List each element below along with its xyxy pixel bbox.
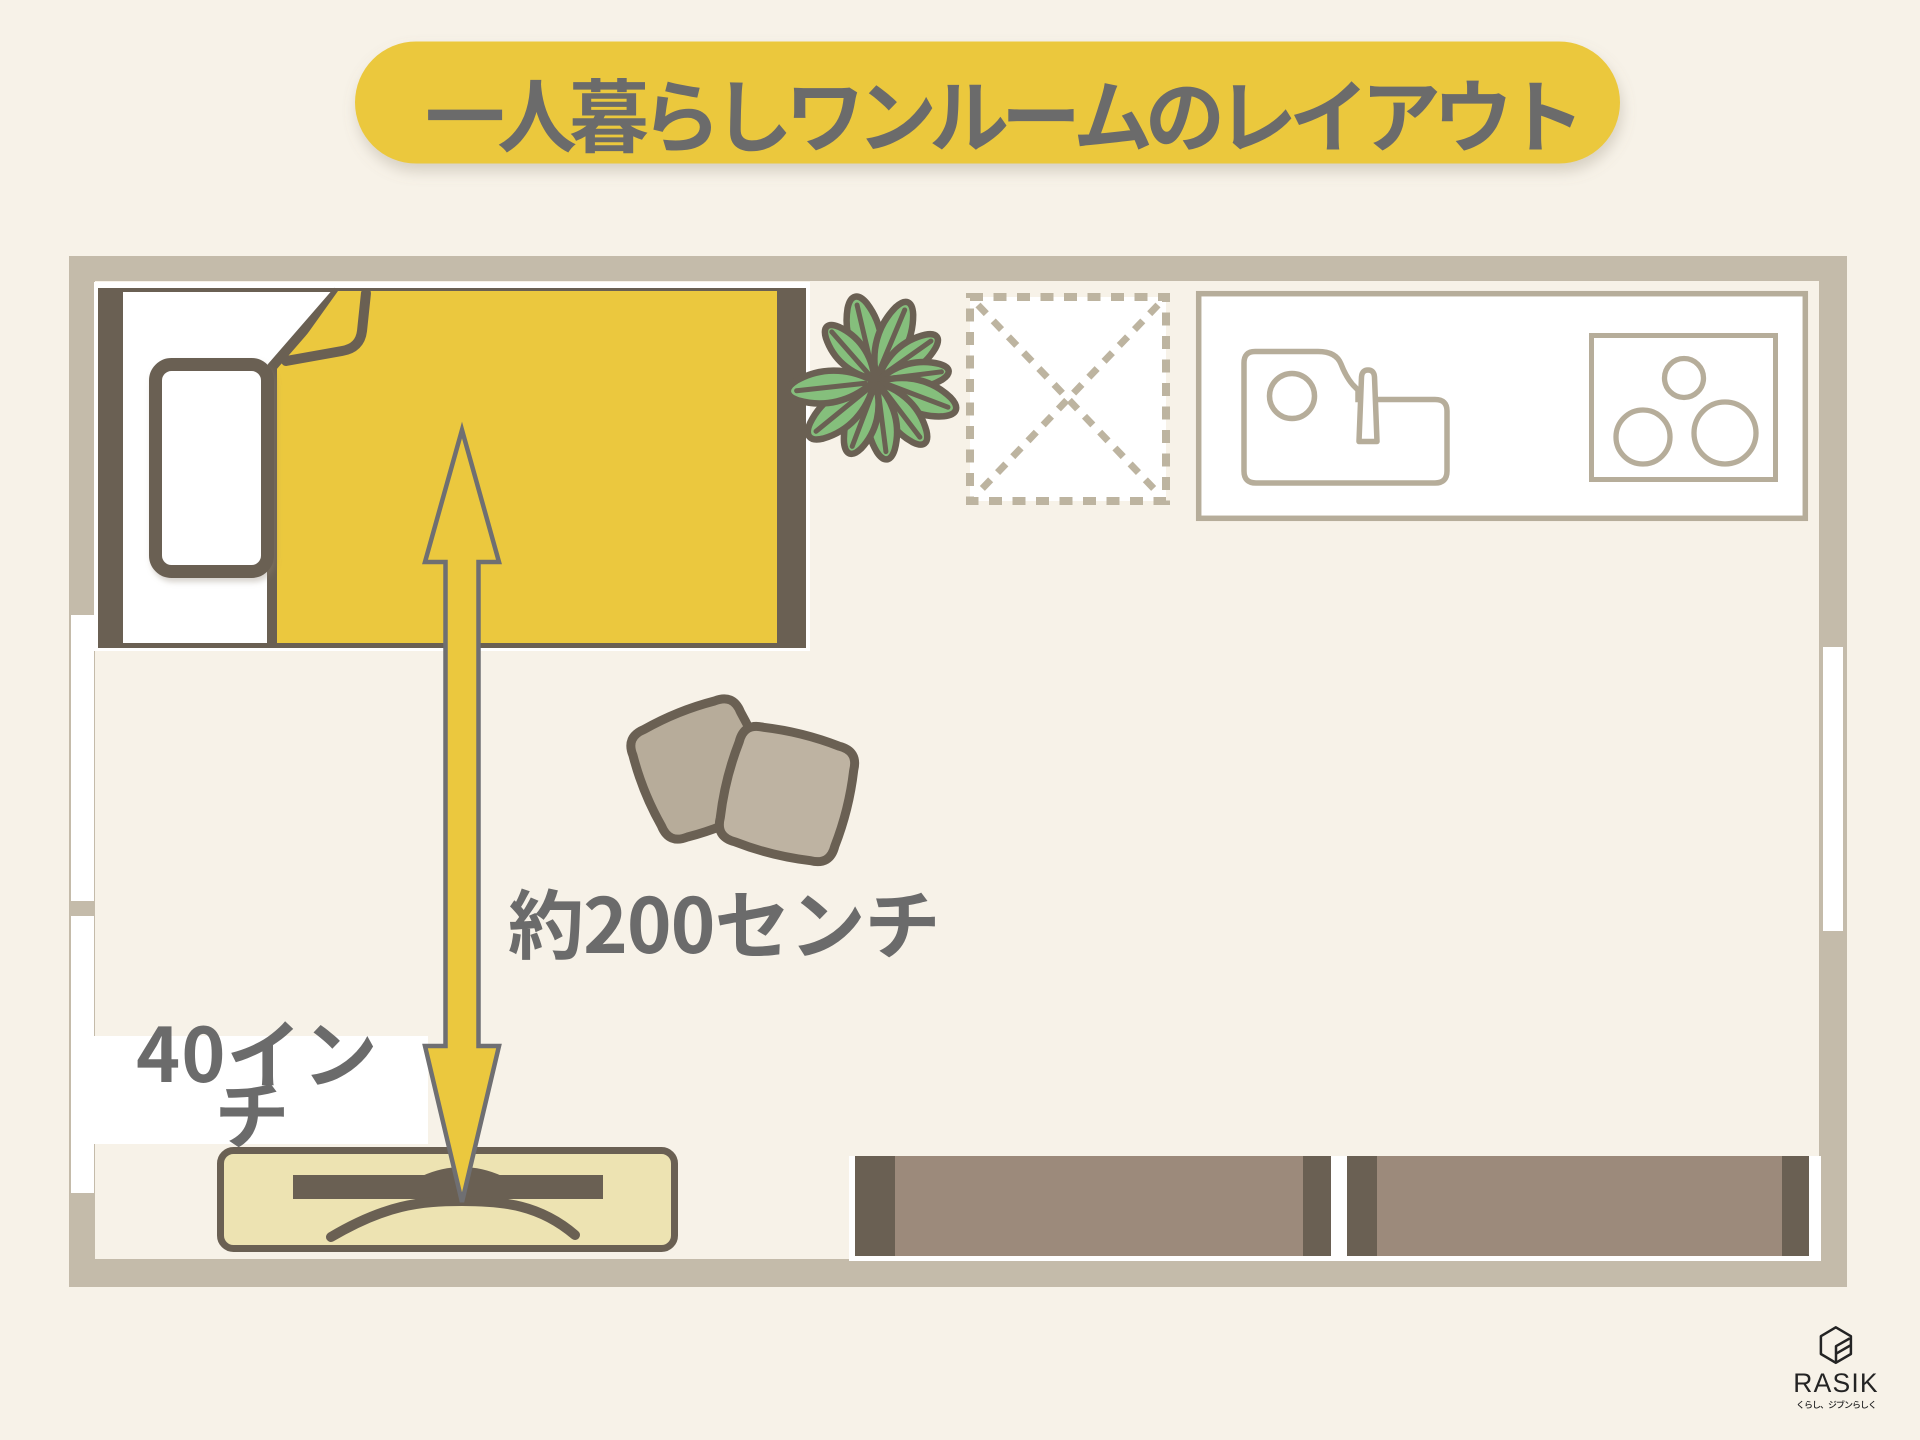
svg-text:RASIK: RASIK <box>1793 1368 1879 1398</box>
